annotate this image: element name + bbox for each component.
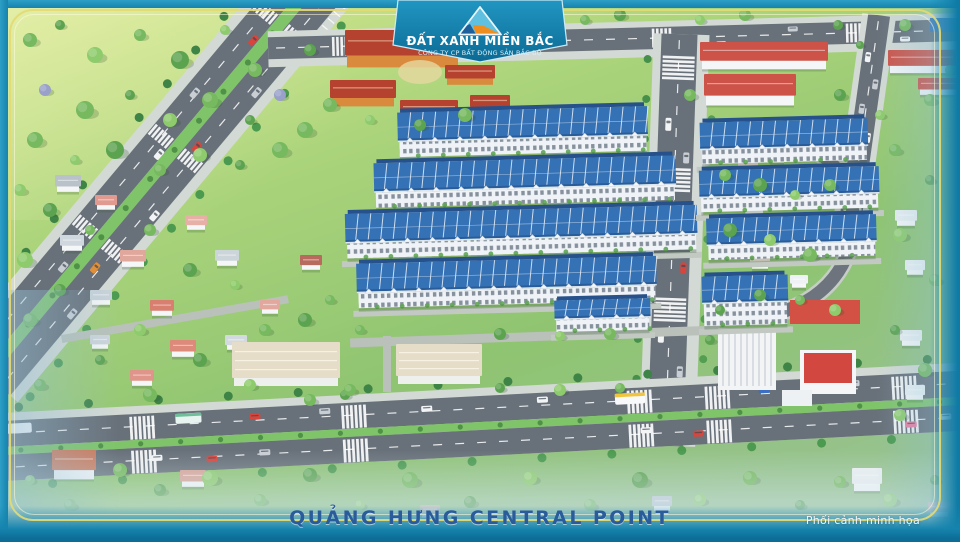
brand-title: ĐẤT XANH MIỀN BẮC <box>390 35 570 48</box>
aerial-3d-render <box>0 0 960 542</box>
render-note: Phối cảnh minh họa <box>806 514 920 527</box>
brand-subtitle: CÔNG TY CP BẤT ĐỘNG SẢN BẮC BỘ <box>390 49 570 57</box>
masterplan-poster: ĐẤT XANH MIỀN BẮC CÔNG TY CP BẤT ĐỘNG SẢ… <box>0 0 960 542</box>
brand-banner: ĐẤT XANH MIỀN BẮC CÔNG TY CP BẤT ĐỘNG SẢ… <box>390 0 570 64</box>
